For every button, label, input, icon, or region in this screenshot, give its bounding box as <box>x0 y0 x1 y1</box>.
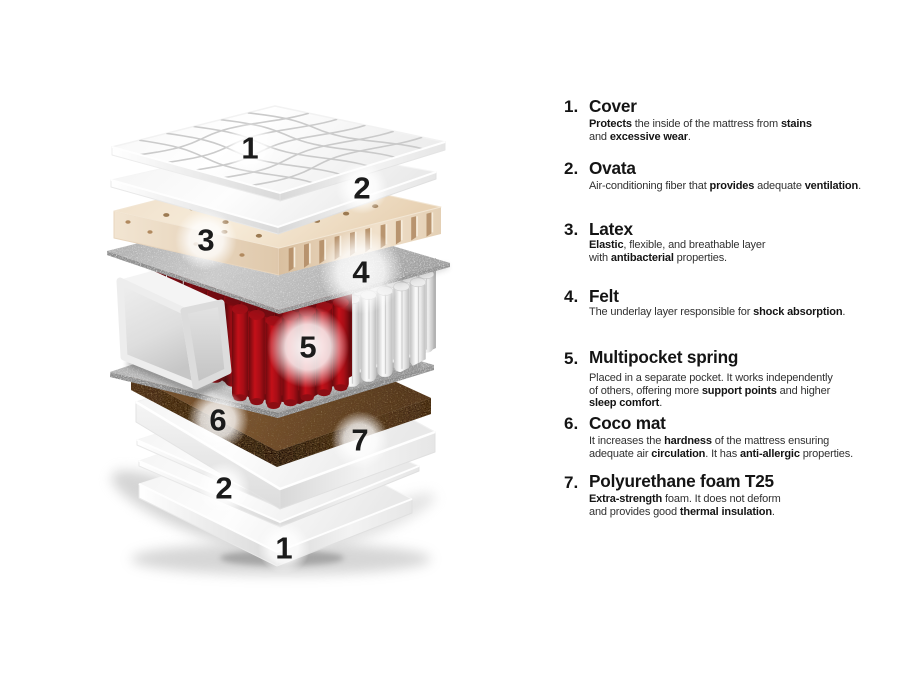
svg-text:1: 1 <box>241 131 258 166</box>
svg-text:2: 2 <box>215 471 232 506</box>
svg-text:3: 3 <box>197 223 214 258</box>
svg-text:4: 4 <box>352 255 370 290</box>
svg-text:2: 2 <box>353 171 370 206</box>
svg-text:1: 1 <box>275 531 292 566</box>
svg-text:5: 5 <box>299 330 316 365</box>
svg-text:6: 6 <box>209 403 226 438</box>
svg-text:7: 7 <box>351 423 368 458</box>
